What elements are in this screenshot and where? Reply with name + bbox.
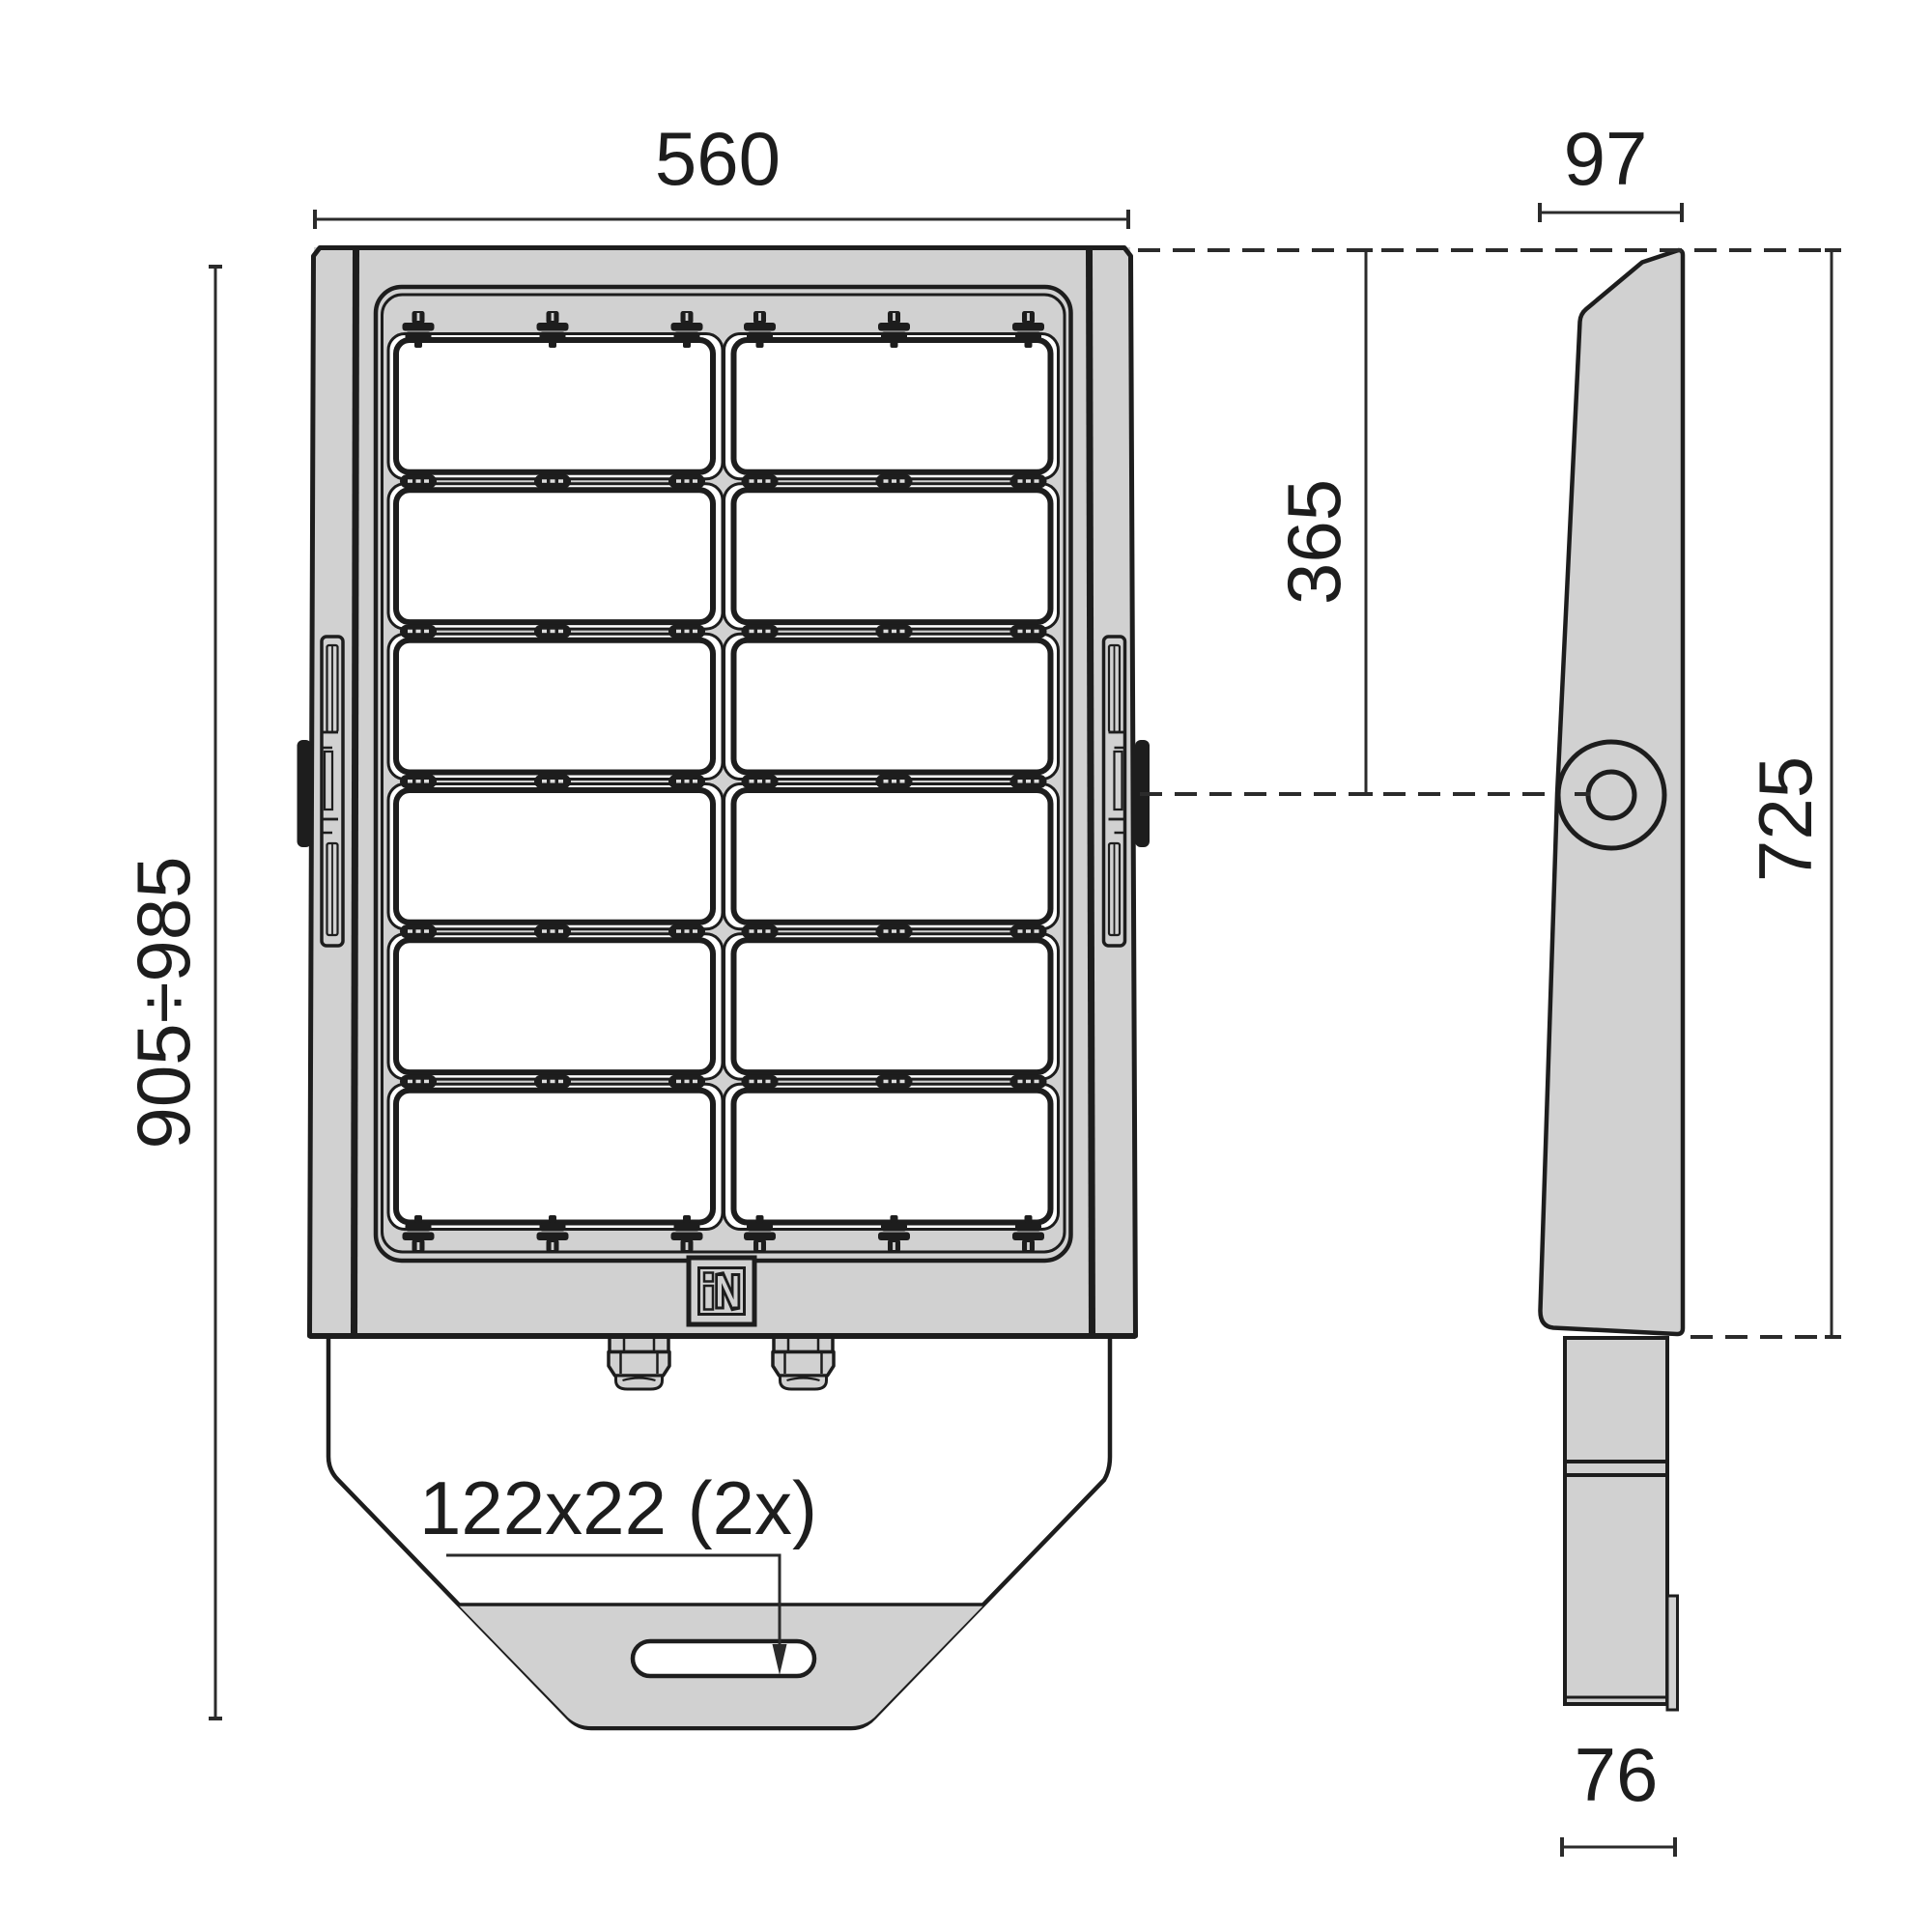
svg-text:76: 76 (1575, 1732, 1659, 1817)
svg-text:97: 97 (1564, 116, 1648, 201)
svg-text:905÷985: 905÷985 (121, 856, 206, 1149)
svg-text:365: 365 (1271, 479, 1356, 605)
svg-text:725: 725 (1743, 756, 1828, 882)
svg-text:122x22 (2x): 122x22 (2x) (419, 1465, 817, 1550)
svg-text:560: 560 (655, 116, 781, 201)
